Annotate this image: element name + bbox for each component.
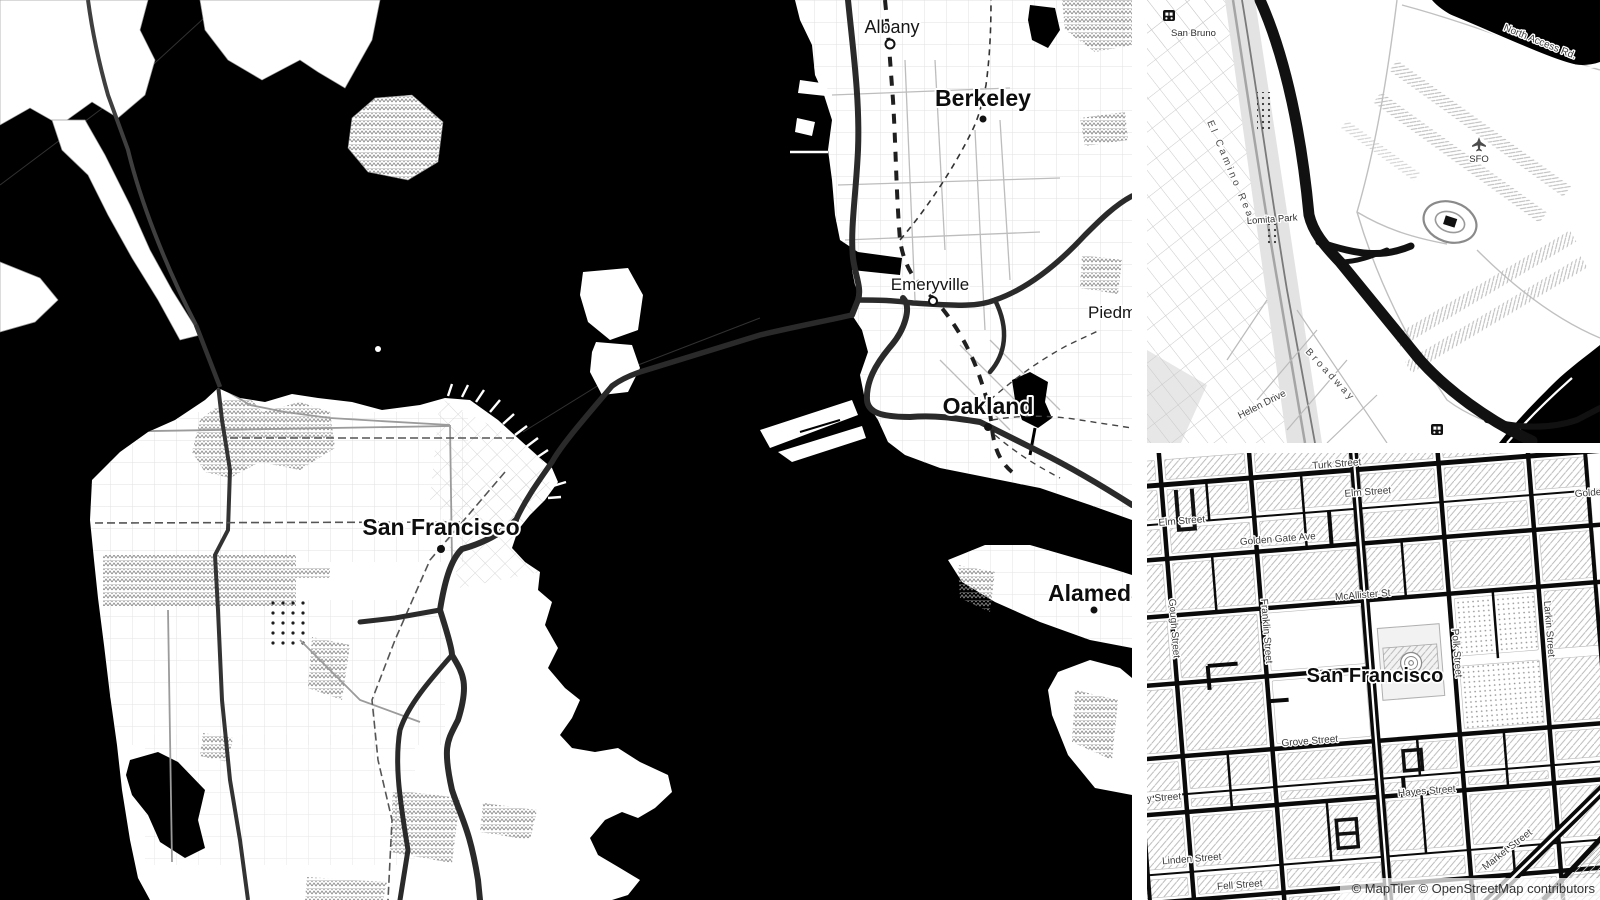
city-block <box>1539 530 1597 581</box>
bay-area-map-canvas: AlbanyBerkeleyEmeryvillePiedmontOaklandS… <box>0 0 1132 900</box>
city-block <box>1147 689 1177 756</box>
label-oakland: Oakland <box>943 393 1034 419</box>
label-golde: Golde <box>1574 487 1600 500</box>
bay-area-overview-map[interactable]: AlbanyBerkeleyEmeryvillePiedmontOaklandS… <box>0 0 1132 900</box>
city-block <box>1534 456 1590 489</box>
label-emeryville: Emeryville <box>891 275 969 294</box>
label-albany: Albany <box>864 17 919 37</box>
albany-marker <box>886 40 895 49</box>
emeryville-marker <box>929 297 937 305</box>
label-berkeley: Berkeley <box>935 85 1031 111</box>
city-block <box>1147 877 1189 899</box>
alcatraz-island <box>375 346 381 352</box>
oakland-marker <box>984 423 992 431</box>
city-hall <box>1377 624 1444 701</box>
city-block <box>1147 529 1162 558</box>
rail-station-icon <box>1431 424 1443 435</box>
label-sf: San Francisco <box>1307 665 1444 687</box>
map-attribution[interactable]: © MapTiler © OpenStreetMap contributors <box>1340 878 1600 900</box>
city-block <box>1267 606 1365 671</box>
label-piedmont: Piedmont <box>1088 303 1132 322</box>
city-block <box>1549 655 1600 722</box>
golf-course-dots <box>268 600 308 645</box>
label-sfo: SFO <box>1469 154 1489 165</box>
city-block <box>1147 460 1156 484</box>
city-block <box>1147 762 1180 794</box>
sfo-airport-map[interactable]: San BrunoEl Camino RealLomita ParkBroadw… <box>1147 0 1600 443</box>
city-block <box>1450 535 1533 588</box>
civic-map-canvas: Turk StreetElm StreetElm StreetGolden Ga… <box>1147 453 1600 900</box>
berkeley-marker <box>980 116 987 123</box>
golden-gate-park <box>103 555 296 606</box>
city-block <box>1470 789 1554 845</box>
city-block <box>1182 682 1267 751</box>
rail-station-icon <box>1163 10 1175 21</box>
san-francisco-marker <box>437 545 445 553</box>
label-san-francisco: San Francisco <box>362 514 519 540</box>
city-block <box>1177 614 1261 678</box>
city-block <box>1444 462 1526 497</box>
alameda-marker <box>1091 607 1098 614</box>
city-block <box>1555 728 1600 760</box>
city-block <box>1459 660 1544 729</box>
label-alameda: Alameda <box>1048 580 1132 606</box>
city-block <box>1147 621 1172 683</box>
civic-center-street-map[interactable]: Turk StreetElm StreetElm StreetGolden Ga… <box>1147 453 1600 900</box>
sfo-map-canvas: San BrunoEl Camino RealLomita ParkBroadw… <box>1147 0 1600 443</box>
city-block <box>1147 564 1166 615</box>
label-san-bruno: San Bruno <box>1171 28 1216 39</box>
city-block <box>1537 495 1593 524</box>
